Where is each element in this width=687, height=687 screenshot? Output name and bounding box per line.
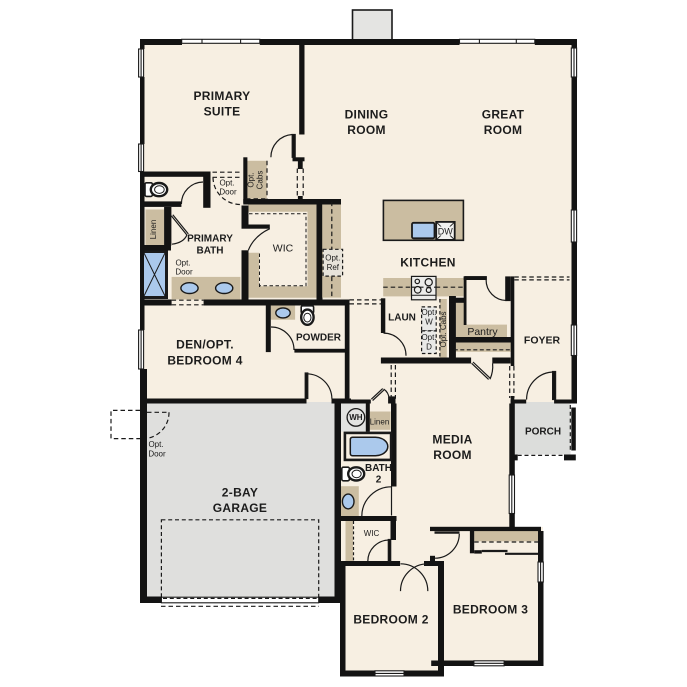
svg-text:DEN/OPT.: DEN/OPT. [176,338,234,352]
svg-text:BATH: BATH [196,246,223,257]
svg-text:W: W [425,318,433,327]
svg-text:Opt.: Opt. [175,259,190,268]
svg-text:Pantry: Pantry [467,326,498,338]
svg-text:FOYER: FOYER [524,335,561,347]
svg-text:MEDIA: MEDIA [432,433,472,447]
svg-text:BATH: BATH [365,463,392,474]
svg-text:Ref: Ref [327,263,340,272]
svg-text:Door: Door [219,188,237,197]
svg-text:KITCHEN: KITCHEN [400,256,455,270]
svg-text:BEDROOM 3: BEDROOM 3 [453,603,528,617]
svg-text:DW: DW [438,226,453,236]
svg-text:D: D [426,343,432,352]
svg-text:Linen: Linen [370,418,390,427]
svg-text:PRIMARY: PRIMARY [194,89,251,103]
svg-text:ROOM: ROOM [347,123,386,137]
svg-text:ROOM: ROOM [433,448,472,462]
svg-text:WIC: WIC [364,529,380,538]
svg-text:GREAT: GREAT [482,108,525,122]
svg-text:Opt.: Opt. [247,172,256,187]
svg-text:LAUN: LAUN [388,313,416,324]
svg-text:POWDER: POWDER [296,333,342,344]
svg-text:Opt.: Opt. [325,254,340,263]
svg-text:2: 2 [376,475,382,486]
svg-text:GARAGE: GARAGE [213,501,267,515]
svg-text:WIC: WIC [273,243,294,255]
svg-text:PRIMARY: PRIMARY [187,234,233,245]
svg-text:WH: WH [349,413,363,422]
svg-text:Opt.: Opt. [421,308,436,317]
svg-text:Opt.: Opt. [148,440,163,449]
svg-text:PORCH: PORCH [525,427,561,438]
svg-text:Opt.: Opt. [421,333,436,342]
svg-text:ROOM: ROOM [484,123,523,137]
svg-text:Door: Door [148,450,166,459]
svg-text:Linen: Linen [149,220,158,240]
svg-text:Opt.: Opt. [219,179,234,188]
svg-text:BEDROOM 4: BEDROOM 4 [167,354,242,368]
svg-text:Opt. Cabs: Opt. Cabs [439,311,448,347]
svg-text:BEDROOM 2: BEDROOM 2 [353,613,428,627]
svg-text:DINING: DINING [345,108,389,122]
svg-text:Door: Door [175,268,193,277]
svg-text:SUITE: SUITE [204,105,241,119]
svg-text:Cabs: Cabs [256,171,265,190]
svg-text:2-BAY: 2-BAY [222,486,258,500]
